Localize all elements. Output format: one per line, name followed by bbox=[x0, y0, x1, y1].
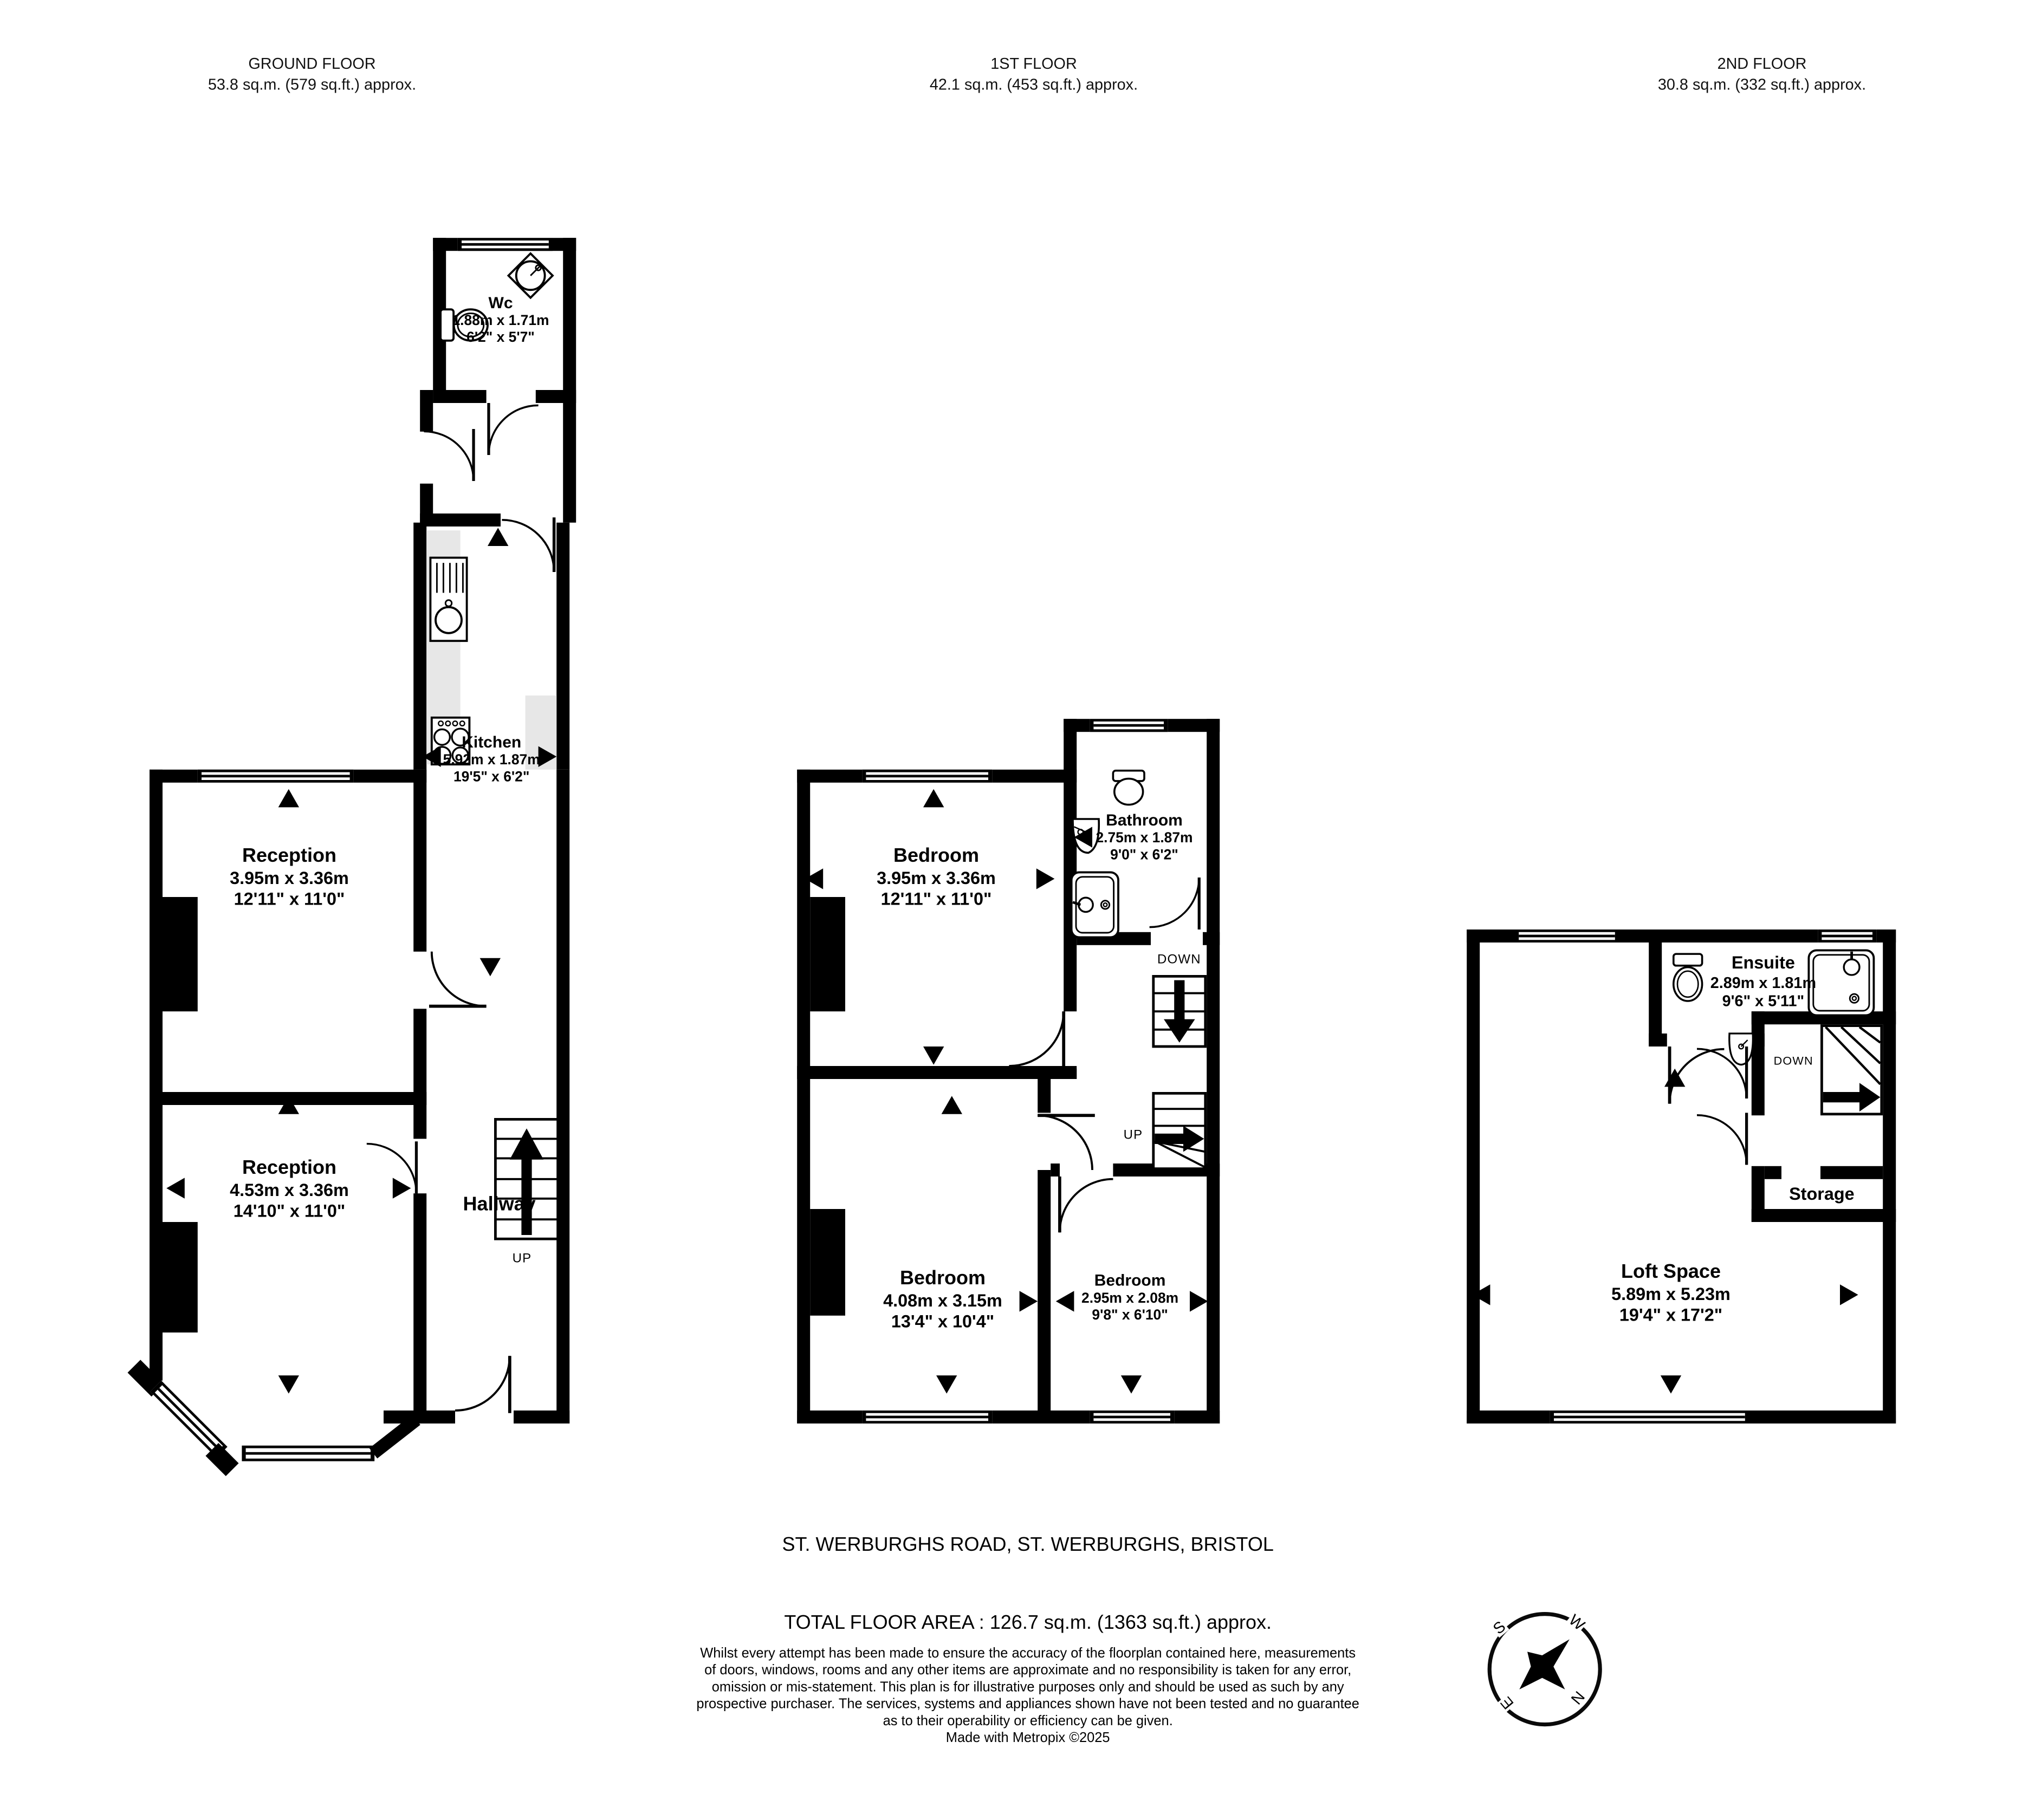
second-floor-header: 2ND FLOOR 30.8 sq.m. (332 sq.ft.) approx… bbox=[1554, 55, 1970, 95]
stairs-up-label: UP bbox=[1124, 1128, 1143, 1142]
corner-sink-icon bbox=[507, 252, 554, 299]
window bbox=[862, 770, 992, 783]
toilet-icon bbox=[1109, 770, 1148, 806]
wall bbox=[413, 1193, 426, 1423]
wall bbox=[536, 390, 576, 403]
floorplan-page: GROUND FLOOR 53.8 sq.m. (579 sq.ft.) app… bbox=[0, 0, 2035, 1820]
ground-floor-area: 53.8 sq.m. (579 sq.ft.) approx. bbox=[104, 75, 520, 95]
second-floor-title: 2ND FLOOR bbox=[1554, 55, 1970, 75]
wall bbox=[150, 770, 163, 1381]
wall bbox=[1765, 1166, 1781, 1179]
wall bbox=[797, 770, 810, 1423]
window bbox=[458, 238, 553, 251]
measure-arrow-down bbox=[480, 958, 501, 977]
room-label-ensuite: Ensuite 2.89m x 1.81m 9'6" x 5'11" bbox=[1672, 953, 1854, 1010]
wall bbox=[1820, 1166, 1883, 1179]
wall bbox=[420, 390, 433, 432]
measure-arrow-up bbox=[942, 1096, 962, 1114]
chimney-breast bbox=[163, 897, 198, 1011]
door-arc bbox=[424, 429, 476, 481]
disclaimer-line: Whilst every attempt has been made to en… bbox=[563, 1646, 1493, 1662]
kitchen-sink-icon bbox=[429, 556, 468, 642]
measure-arrow-up bbox=[923, 789, 944, 808]
measure-arrow-left bbox=[1472, 1284, 1490, 1305]
measure-arrow-down bbox=[923, 1046, 944, 1065]
credit-line: Made with Metropix ©2025 bbox=[563, 1730, 1493, 1746]
room-label-hallway: Hallway bbox=[429, 1193, 569, 1216]
door-arc bbox=[455, 1356, 513, 1413]
wall bbox=[1752, 1209, 1896, 1222]
measure-arrow-up bbox=[488, 528, 508, 546]
measure-arrow-down bbox=[1661, 1375, 1681, 1394]
room-label-wc: Wc 1.88m x 1.71m 6'2" x 5'7" bbox=[423, 294, 579, 347]
disclaimer-line: prospective purchaser. The services, sys… bbox=[563, 1696, 1493, 1713]
measure-arrow-up bbox=[278, 1096, 299, 1114]
ground-floor-header: GROUND FLOOR 53.8 sq.m. (579 sq.ft.) app… bbox=[104, 55, 520, 95]
wall bbox=[1883, 929, 1896, 1423]
floorplan-canvas: GROUND FLOOR 53.8 sq.m. (579 sq.ft.) app… bbox=[0, 0, 2035, 1820]
window bbox=[1090, 719, 1168, 732]
measure-arrow-down bbox=[1121, 1375, 1142, 1394]
wall bbox=[556, 523, 569, 770]
door-arc bbox=[1038, 1113, 1095, 1170]
wall bbox=[384, 1410, 455, 1423]
first-floor-area: 42.1 sq.m. (453 sq.ft.) approx. bbox=[826, 75, 1242, 95]
wall bbox=[514, 1410, 569, 1423]
room-label-bathroom: Bathroom 2.75m x 1.87m 9'0" x 6'2" bbox=[1074, 811, 1214, 864]
window bbox=[1515, 929, 1619, 942]
wall bbox=[1467, 929, 1480, 1423]
measure-arrow-right bbox=[1840, 1284, 1858, 1305]
stairs-down-label: DOWN bbox=[1157, 953, 1201, 967]
door-arc bbox=[1697, 1046, 1749, 1098]
disclaimer-line: omission or mis-statement. This plan is … bbox=[563, 1679, 1493, 1696]
first-floor-header: 1ST FLOOR 42.1 sq.m. (453 sq.ft.) approx… bbox=[826, 55, 1242, 95]
wall bbox=[413, 1009, 426, 1139]
first-floor-title: 1ST FLOOR bbox=[826, 55, 1242, 75]
room-label-bedroom-2: Bedroom 4.08m x 3.15m 13'4" x 10'4" bbox=[819, 1267, 1066, 1332]
room-label-loft-space: Loft Space 5.89m x 5.23m 19'4" x 17'2" bbox=[1547, 1261, 1794, 1325]
door-arc bbox=[487, 403, 539, 455]
staircase-up bbox=[494, 1118, 559, 1240]
room-label-reception-2: Reception 4.53m x 3.36m 14'10" x 11'0" bbox=[169, 1157, 410, 1221]
door-arc bbox=[1697, 1113, 1749, 1165]
wall bbox=[413, 770, 426, 952]
disclaimer-line: of doors, windows, rooms and any other i… bbox=[563, 1662, 1493, 1679]
disclaimer: Whilst every attempt has been made to en… bbox=[563, 1646, 1493, 1746]
room-label-reception-1: Reception 3.95m x 3.36m 12'11" x 11'0" bbox=[169, 845, 410, 909]
wall bbox=[420, 513, 501, 526]
wall bbox=[1038, 1079, 1051, 1113]
staircase-down bbox=[1152, 975, 1207, 1048]
wall bbox=[1064, 719, 1077, 1011]
room-label-storage: Storage bbox=[1765, 1184, 1879, 1205]
door-arc bbox=[502, 517, 556, 572]
door-arc bbox=[1150, 877, 1202, 929]
measure-arrow-up bbox=[278, 789, 299, 808]
wall bbox=[563, 238, 576, 523]
window bbox=[198, 770, 354, 783]
disclaimer-line: as to their operability or efficiency ca… bbox=[563, 1713, 1493, 1730]
window bbox=[1090, 1410, 1174, 1423]
bathtub-icon bbox=[1070, 871, 1119, 939]
room-label-kitchen: Kitchen 5.92m x 1.87m 19'5" x 6'2" bbox=[413, 733, 569, 786]
staircase-up bbox=[1152, 1092, 1207, 1170]
bay-window bbox=[242, 1446, 374, 1461]
ground-floor-title: GROUND FLOOR bbox=[104, 55, 520, 75]
wall bbox=[413, 523, 426, 770]
wall bbox=[1649, 929, 1662, 1046]
chimney-breast bbox=[163, 1222, 198, 1332]
measure-arrow-down bbox=[936, 1375, 957, 1394]
second-floor-area: 30.8 sq.m. (332 sq.ft.) approx. bbox=[1554, 75, 1970, 95]
door-arc bbox=[1009, 1011, 1066, 1069]
stairs-down-label: DOWN bbox=[1774, 1054, 1813, 1067]
window bbox=[1818, 929, 1876, 942]
staircase-down bbox=[1820, 1024, 1883, 1115]
wall bbox=[1203, 932, 1220, 945]
measure-arrow-down bbox=[278, 1375, 299, 1394]
window bbox=[862, 1410, 992, 1423]
compass-rose: S W N E bbox=[1485, 1609, 1599, 1724]
window bbox=[1550, 1410, 1749, 1423]
wall bbox=[433, 390, 486, 403]
door-arc bbox=[429, 952, 487, 1009]
door-arc bbox=[1057, 1176, 1113, 1232]
measure-arrow-up bbox=[1664, 1069, 1685, 1087]
wall bbox=[556, 770, 569, 1423]
chimney-breast bbox=[810, 897, 845, 1011]
room-label-bedroom-3: Bedroom 2.95m x 2.08m 9'8" x 6'10" bbox=[1051, 1271, 1209, 1324]
room-label-bedroom-1: Bedroom 3.95m x 3.36m 12'11" x 11'0" bbox=[813, 845, 1060, 909]
wall bbox=[1649, 1033, 1667, 1046]
stairs-up-label: UP bbox=[513, 1252, 532, 1266]
property-address: ST. WERBURGHS ROAD, ST. WERBURGHS, BRIST… bbox=[368, 1534, 1688, 1556]
